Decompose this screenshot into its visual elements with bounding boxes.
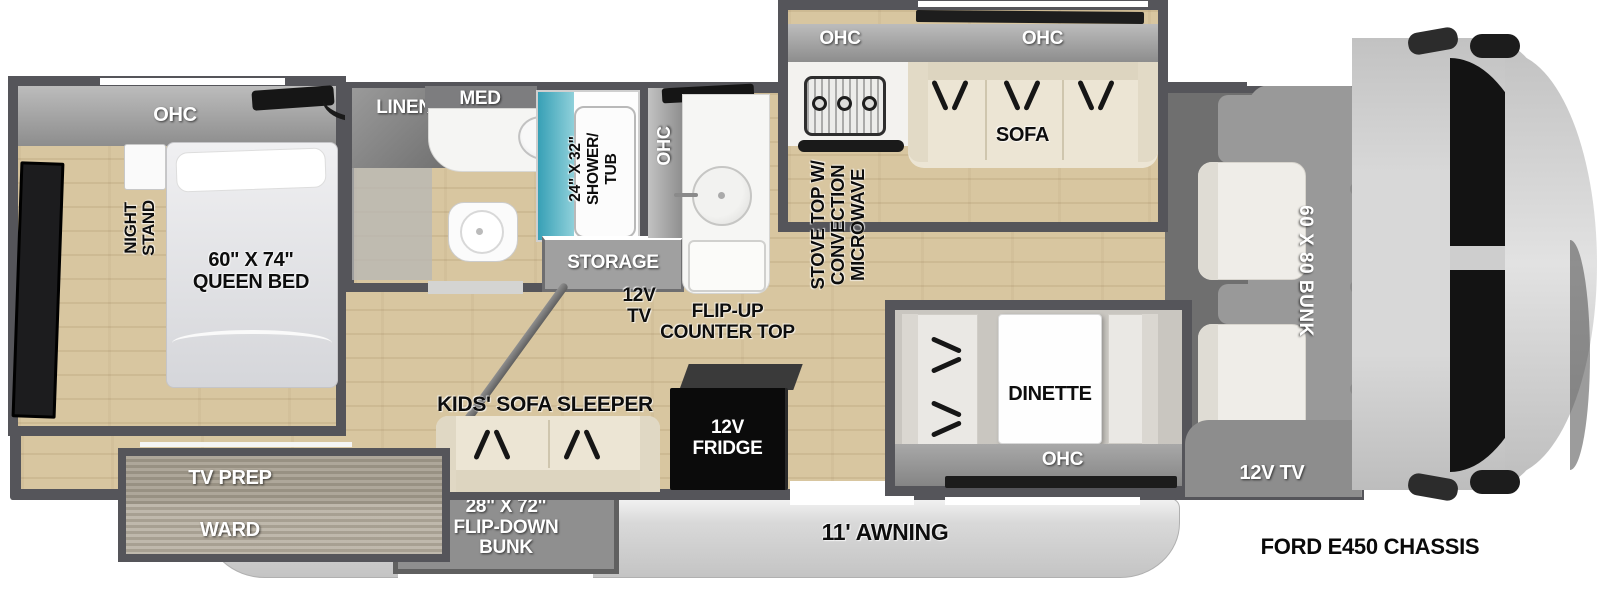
med-label: MED <box>440 89 520 110</box>
front-tv-cabinet <box>1185 420 1361 497</box>
dinette-window-strip <box>945 497 1140 505</box>
cab-seat-passenger-back <box>1198 162 1218 280</box>
flip-up-counter-label: FLIP-UP COUNTER TOP <box>640 302 815 343</box>
toilet-flush-dot <box>476 228 483 235</box>
storage-label: STORAGE <box>544 253 682 274</box>
bathroom-floor-shade <box>352 168 432 280</box>
sofa-armrest-right <box>1138 62 1158 162</box>
seat-crease-icon <box>472 426 512 464</box>
fridge-top-face <box>679 364 802 390</box>
seat-crease-icon <box>927 335 965 375</box>
stove-label: STOVE TOP W/ CONVECTION MICROWAVE <box>805 139 871 311</box>
cabover-bunk-label: 60 X 80 BUNK <box>1292 166 1318 376</box>
tv-prep-highlight <box>140 442 352 447</box>
kitchen-ohc-left-label: OHC <box>795 29 885 50</box>
fridge-label: 12V FRIDGE <box>693 418 763 459</box>
front-tv-label: 12V TV <box>1217 463 1327 485</box>
kids-sofa-label: KIDS' SOFA SLEEPER <box>420 394 670 417</box>
sofa-label: SOFA <box>975 125 1070 147</box>
seat-crease-icon <box>930 76 970 114</box>
front-window-strip <box>1247 78 1359 86</box>
bed-pillow <box>175 147 326 192</box>
seat-crease-icon <box>562 426 602 464</box>
dinette-bench-right-back <box>1142 314 1158 444</box>
rv-floorplan: 11' AWNING 28" X 72" FLIP-DOWN BUNK OHC … <box>0 0 1600 601</box>
cabover-bunk-tab-top <box>1218 95 1264 163</box>
sink-drain-dot <box>718 192 725 199</box>
bedroom-left-window <box>1 158 8 418</box>
bedroom-top-window <box>100 78 285 85</box>
kitchen-faucet <box>674 193 698 197</box>
dinette-label: DINETTE <box>998 384 1102 406</box>
flip-up-counter <box>688 240 766 292</box>
queen-bed-label: 60" X 74" QUEEN BED <box>168 250 334 293</box>
seat-crease-icon <box>1002 76 1042 114</box>
kitchen-slideout-window <box>918 1 1148 7</box>
dinette-table <box>998 314 1102 444</box>
kids-sofa-armrest-right <box>640 416 660 492</box>
kids-sofa-back <box>436 470 660 492</box>
kids-sofa-divider <box>548 420 550 468</box>
seat-crease-icon <box>927 399 965 439</box>
fridge: 12V FRIDGE <box>670 388 788 490</box>
seat-crease-icon <box>1076 76 1116 114</box>
burner-icon <box>837 96 852 111</box>
bedroom-tv <box>12 161 65 418</box>
shower-tub-label: 24" X 32" SHOWER/ TUB <box>563 94 625 244</box>
flip-down-bunk-window-strip <box>398 574 593 581</box>
chassis-label: FORD E450 CHASSIS <box>1245 535 1495 559</box>
burner-icon <box>812 96 827 111</box>
dinette-ohc-label: OHC <box>1010 450 1115 471</box>
dinette-window-rail <box>945 476 1177 488</box>
sofa-seat-divider <box>1062 80 1064 160</box>
wheel-icon <box>1470 470 1520 494</box>
cabover-bunk-tab-mid <box>1218 284 1264 324</box>
awning-label: 11' AWNING <box>760 520 1010 545</box>
bathroom-doorway <box>428 281 523 294</box>
sofa-armrest-left <box>908 62 928 162</box>
tv-prep-label: TV PREP <box>150 468 310 490</box>
ward-label: WARD <box>150 520 310 542</box>
sofa-seat-divider <box>985 80 987 160</box>
sink-ohc-label: OHC <box>648 94 682 198</box>
wheel-icon <box>1470 34 1520 58</box>
kitchen-slideout-awning-rail <box>916 10 1144 24</box>
burner-icon <box>862 96 877 111</box>
kitchen-ohc-right-label: OHC <box>995 29 1090 50</box>
bed-blanket-fold <box>172 330 332 356</box>
bedroom-ohc-label: OHC <box>130 105 220 127</box>
